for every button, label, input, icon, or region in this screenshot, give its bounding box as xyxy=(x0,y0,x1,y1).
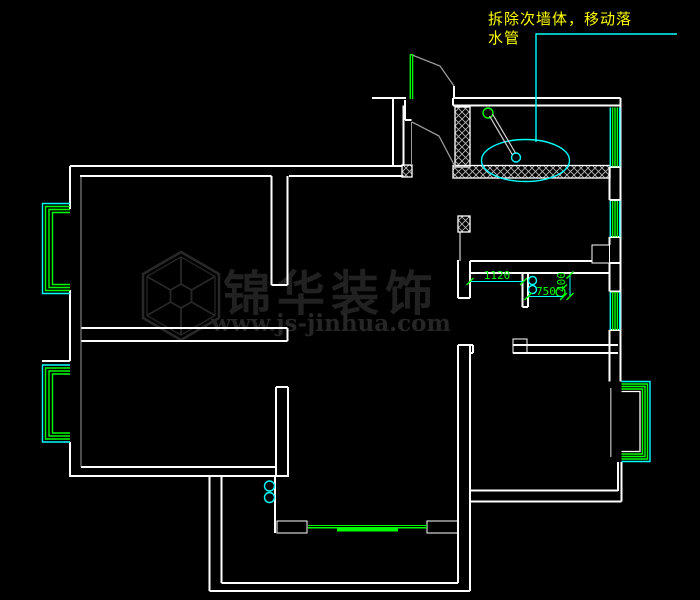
walls-layer xyxy=(42,86,622,591)
watermark: 锦华装饰 www.js-jinhua.com xyxy=(143,252,451,340)
balcony-sliding-door xyxy=(308,526,427,530)
hexagon-cube-logo xyxy=(143,252,219,340)
balcony-drain-circle-icon xyxy=(265,481,275,491)
floor-plan-canvas: 锦华装饰 www.js-jinhua.com xyxy=(0,0,700,600)
pipe-end-circle-icon xyxy=(483,108,493,118)
bay-window-right xyxy=(622,382,651,462)
watermark-website: www.js-jinhua.com xyxy=(210,310,451,337)
drain-circle-icon xyxy=(512,153,521,162)
entry-door xyxy=(410,54,412,99)
annotation-group: 拆除次墙体，移动落 水管 xyxy=(488,10,677,142)
balcony-drain-circle-icon xyxy=(265,493,275,503)
demolition-hatch-walls xyxy=(402,107,610,232)
kitchen-drain-circle-icon xyxy=(529,277,537,285)
window-right-dining xyxy=(610,292,619,330)
window-right-kitchen xyxy=(610,201,619,237)
bay-window-left-lower xyxy=(43,365,71,442)
window-right-bathroom xyxy=(610,108,619,167)
annotation-line2: 水管 xyxy=(488,29,520,47)
hatch-bathroom-left-wall xyxy=(455,107,470,167)
dimension-label: 400 xyxy=(555,272,568,292)
hatch-pier xyxy=(458,216,470,232)
leader-line xyxy=(536,34,677,142)
hatch-bathroom-bottom-wall xyxy=(453,166,610,179)
entry-diagonal-wall-upper xyxy=(411,55,454,87)
bay-window-left-upper xyxy=(43,204,71,294)
dimension-1120: 1120 xyxy=(467,269,528,285)
annotation-line1: 拆除次墙体，移动落 xyxy=(488,10,632,28)
dimension-label: 1120 xyxy=(484,269,511,282)
cad-floor-plan-view: 锦华装饰 www.js-jinhua.com xyxy=(0,0,700,600)
pipe-bar xyxy=(490,114,516,155)
dimension-label: 750 xyxy=(536,285,556,298)
entry-diagonal-wall-lower xyxy=(412,122,455,167)
wall-notch xyxy=(592,245,610,263)
